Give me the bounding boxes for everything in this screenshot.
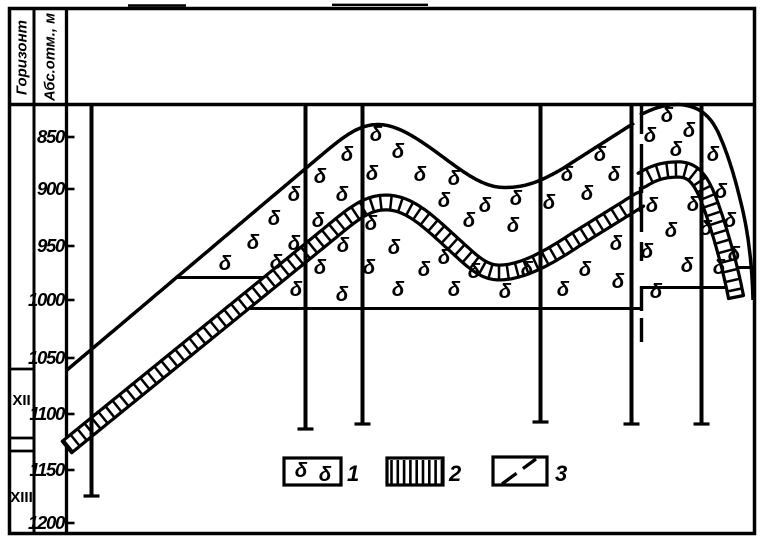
svg-text:Горизонт: Горизонт xyxy=(14,20,31,95)
svg-text:1: 1 xyxy=(347,461,359,486)
svg-text:1100: 1100 xyxy=(29,403,66,424)
svg-text:1200: 1200 xyxy=(28,512,66,533)
svg-text:850: 850 xyxy=(37,126,66,147)
svg-text:1150: 1150 xyxy=(29,459,66,480)
svg-text:3: 3 xyxy=(555,461,567,486)
svg-text:950: 950 xyxy=(37,235,66,256)
svg-text:XII: XII xyxy=(12,392,30,409)
svg-text:2: 2 xyxy=(448,461,462,486)
svg-text:Абс.отм., м: Абс.отм., м xyxy=(43,13,59,102)
svg-text:900: 900 xyxy=(37,178,66,199)
svg-text:1000: 1000 xyxy=(28,289,66,310)
svg-text:XIII: XIII xyxy=(10,489,33,506)
svg-text:1050: 1050 xyxy=(28,347,66,368)
